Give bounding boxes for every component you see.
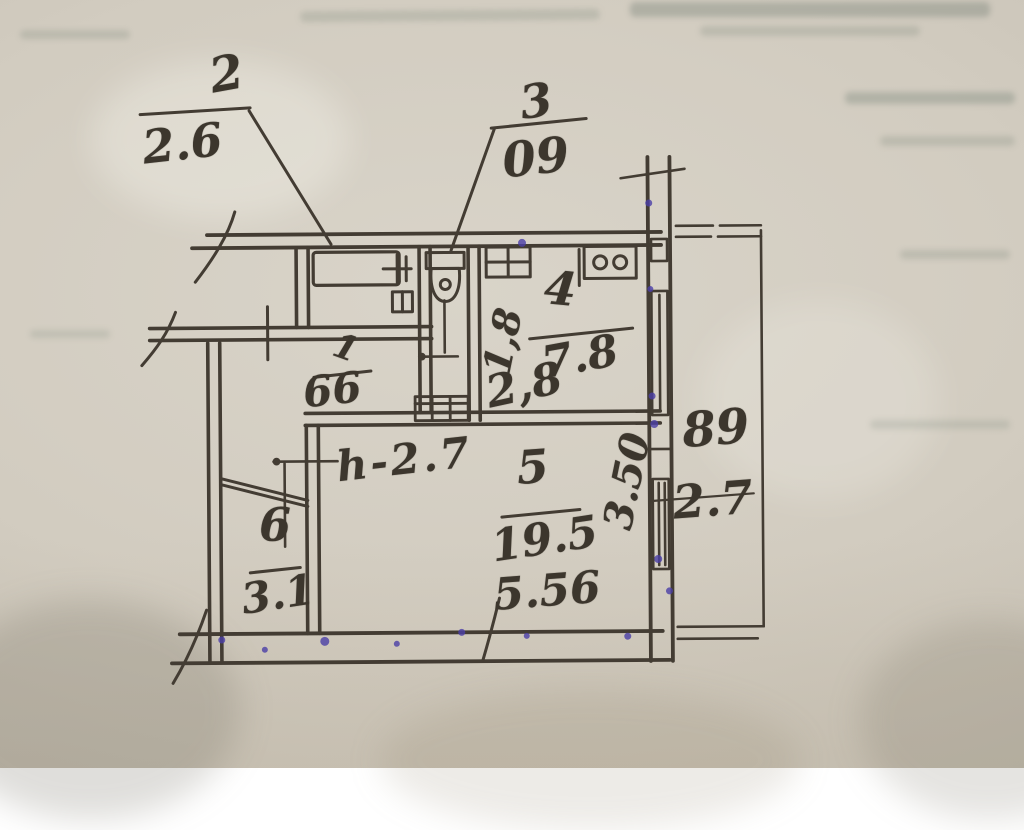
room-6-number: 6	[259, 502, 291, 548]
plan-layer: 2 2.6 3 09 1 66 4 7.8 2,8 1,8 5 19.5 5.5…	[0, 0, 1024, 772]
room-2-area: 2.6	[140, 116, 225, 171]
room-3-area: 09	[500, 130, 572, 185]
kitchen-sink-icon	[486, 247, 530, 277]
room-1-area: 66	[301, 366, 364, 414]
room-4-number: 4	[542, 264, 578, 313]
leader-line	[249, 109, 495, 252]
room-3-number: 3	[517, 76, 555, 126]
floor-plan-photo: 2 2.6 3 09 1 66 4 7.8 2,8 1,8 5 19.5 5.5…	[0, 0, 1024, 768]
room-5-number: 5	[515, 443, 550, 491]
stove-icon	[579, 246, 636, 285]
balcony-label-bottom: 2.7	[671, 474, 754, 526]
balcony-label-top: 89	[681, 402, 751, 455]
room-6-area: 3.1	[239, 569, 317, 621]
radiator-icon	[415, 396, 468, 420]
room-5-width-dim: 5.56	[492, 566, 602, 618]
